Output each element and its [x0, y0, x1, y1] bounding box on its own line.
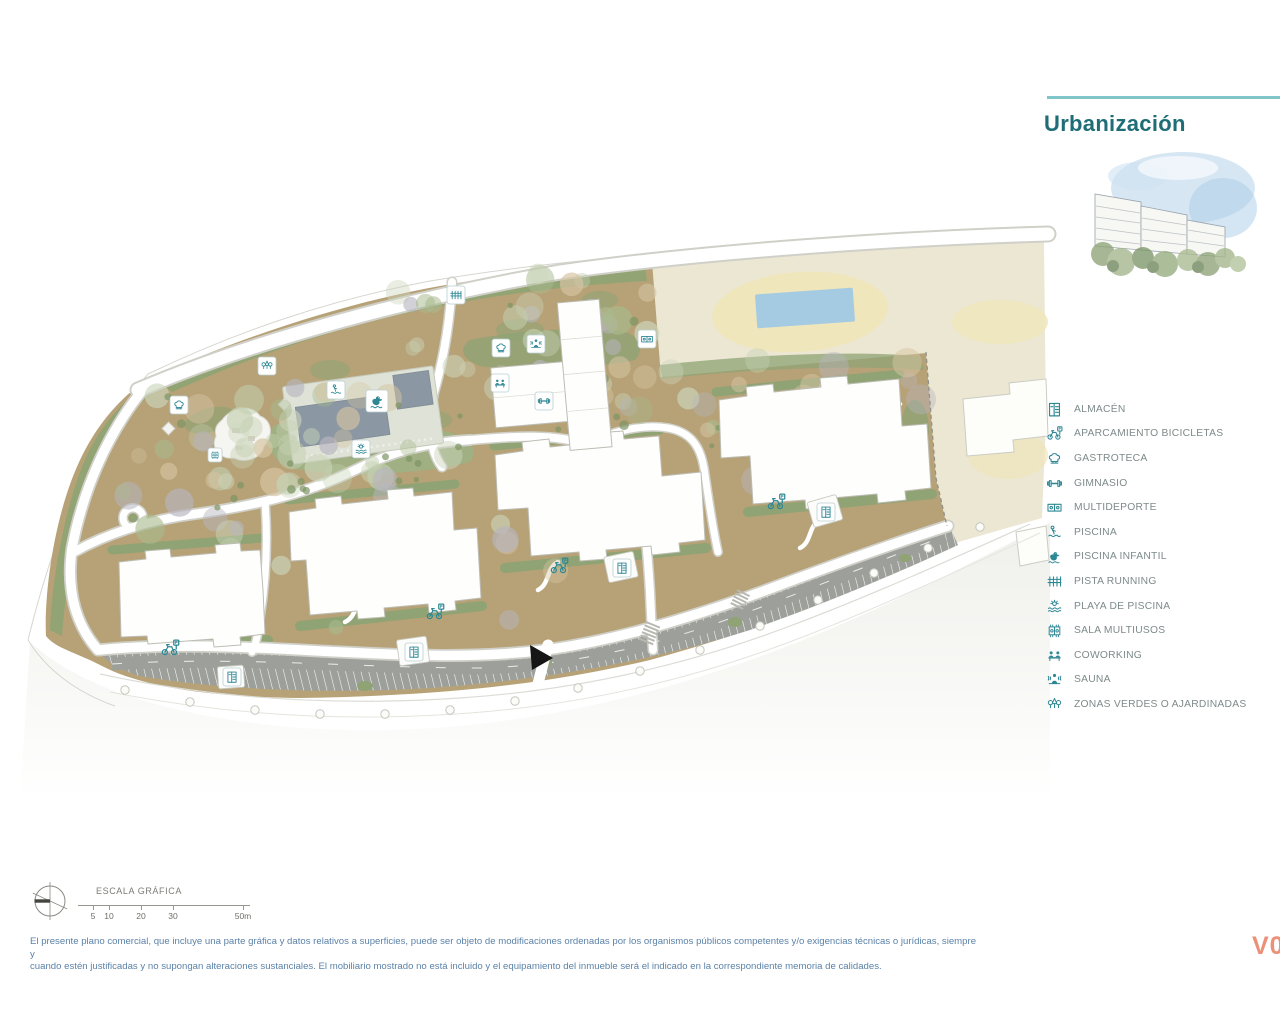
- building-footprint-2: [289, 488, 481, 619]
- legend-item: ZONAS VERDES O AJARDINADAS: [1046, 692, 1246, 717]
- playa-piscina-icon: [1046, 598, 1063, 615]
- almacen-icon: [1046, 401, 1063, 418]
- scale-tick: [243, 905, 244, 910]
- accent-line: [1047, 96, 1280, 99]
- version-label: V0: [1252, 932, 1280, 961]
- page: { "header": { "title": "Urbanización" },…: [0, 0, 1280, 1024]
- map-badge-multideporte-icon: [638, 330, 656, 348]
- legend-item: APARCAMIENTO BICICLETAS: [1046, 422, 1246, 447]
- legend-item: SAUNA: [1046, 668, 1246, 693]
- building-illustration: [1083, 146, 1258, 296]
- disclaimer-line-2: cuando estén justificadas y no supongan …: [30, 961, 978, 974]
- scale-bar-title: ESCALA GRÁFICA: [96, 886, 182, 896]
- legend-label: GASTROTECA: [1074, 453, 1147, 464]
- map-badge-gimnasio-icon: [535, 392, 553, 410]
- zonas-verdes-icon: [1046, 696, 1063, 713]
- legend: ALMACÉNAPARCAMIENTO BICICLETASGASTROTECA…: [1046, 397, 1246, 717]
- coworking-icon: [1046, 647, 1063, 664]
- page-title: Urbanización: [1044, 111, 1186, 137]
- piscina-icon: [1046, 524, 1063, 541]
- legend-item: ALMACÉN: [1046, 397, 1246, 422]
- legend-label: GIMNASIO: [1074, 478, 1128, 489]
- legend-item: GIMNASIO: [1046, 471, 1246, 496]
- legend-label: PISCINA: [1074, 527, 1117, 538]
- scale-tick: [109, 905, 110, 910]
- map-badge-sauna-icon: [527, 335, 545, 353]
- map-badge-playa-piscina-icon: [352, 440, 370, 458]
- map-badge-coworking-icon: [491, 374, 509, 392]
- compass-icon: [28, 879, 72, 923]
- scale-tick-label: 30: [168, 911, 177, 921]
- legend-item: MULTIDEPORTE: [1046, 495, 1246, 520]
- multideporte-icon: [1046, 499, 1063, 516]
- pista-running-icon: [1046, 573, 1063, 590]
- gimnasio-icon: [1046, 475, 1063, 492]
- sauna-icon: [1046, 671, 1063, 688]
- legend-label: COWORKING: [1074, 650, 1142, 661]
- legend-label: ZONAS VERDES O AJARDINADAS: [1074, 699, 1246, 710]
- legend-label: SALA MULTIUSOS: [1074, 625, 1165, 636]
- scale-tick-label: 10: [104, 911, 113, 921]
- map-badge-piscina-infantil-icon: [366, 390, 388, 412]
- legend-item: PISTA RUNNING: [1046, 569, 1246, 594]
- piscina-infantil-icon: [1046, 548, 1063, 565]
- legend-label: PISTA RUNNING: [1074, 576, 1157, 587]
- scale-tick-label: 20: [136, 911, 145, 921]
- gastroteca-icon: [1046, 450, 1063, 467]
- scale-tick-label: 50m: [235, 911, 252, 921]
- legend-label: SAUNA: [1074, 674, 1111, 685]
- sala-multiusos-icon: [1046, 622, 1063, 639]
- legend-label: APARCAMIENTO BICICLETAS: [1074, 428, 1223, 439]
- map-badge-almacen-icon: [405, 643, 423, 661]
- scale-tick-label: 5: [91, 911, 96, 921]
- scale-bar: 510203050m: [78, 905, 250, 923]
- legend-label: ALMACÉN: [1074, 404, 1126, 415]
- map-badge-almacen-icon: [223, 668, 241, 686]
- map-badge-almacen-icon: [613, 559, 631, 577]
- offsite-pool: [755, 288, 855, 329]
- map-badge-gastroteca-icon: [170, 396, 188, 414]
- legend-label: PISCINA INFANTIL: [1074, 551, 1167, 562]
- neighbor-building: [1016, 526, 1049, 566]
- map-badge-pista-running-icon: [447, 286, 465, 304]
- legend-item: COWORKING: [1046, 643, 1246, 668]
- legend-label: MULTIDEPORTE: [1074, 502, 1157, 513]
- scale-tick: [173, 905, 174, 910]
- map-badge-sala-multiusos-icon: [208, 448, 222, 462]
- bicicletas-icon: [1046, 425, 1063, 442]
- legend-item: PLAYA DE PISCINA: [1046, 594, 1246, 619]
- disclaimer-line-1: El presente plano comercial, que incluye…: [30, 936, 978, 961]
- scale-tick: [141, 905, 142, 910]
- map-badge-almacen-icon: [817, 503, 835, 521]
- legend-item: PISCINA: [1046, 520, 1246, 545]
- map-badge-piscina-icon: [327, 381, 345, 399]
- legend-item: GASTROTECA: [1046, 446, 1246, 471]
- map-badge-zonas-verdes-icon: [258, 357, 276, 375]
- legend-item: SALA MULTIUSOS: [1046, 618, 1246, 643]
- legend-label: PLAYA DE PISCINA: [1074, 601, 1170, 612]
- disclaimer-text: El presente plano comercial, que incluye…: [30, 936, 978, 974]
- map-badge-gastroteca-icon: [492, 339, 510, 357]
- legend-item: PISCINA INFANTIL: [1046, 545, 1246, 570]
- scale-tick: [93, 905, 94, 910]
